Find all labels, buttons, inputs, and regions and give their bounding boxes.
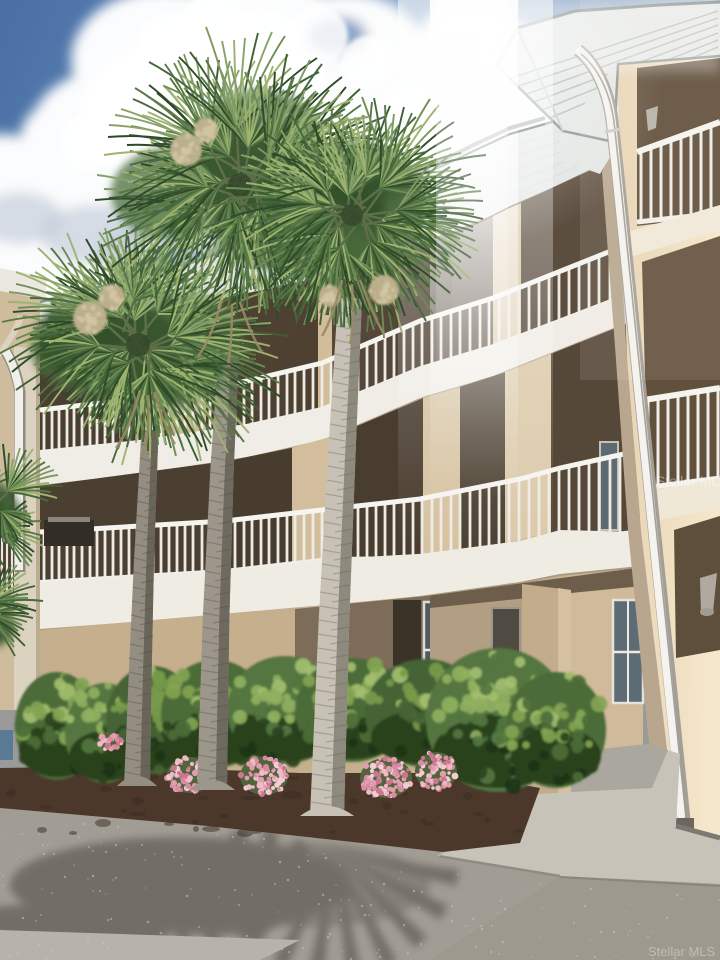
- svg-text:Stellar MLS: Stellar MLS: [656, 473, 720, 489]
- svg-text:Stellar MLS: Stellar MLS: [648, 944, 716, 959]
